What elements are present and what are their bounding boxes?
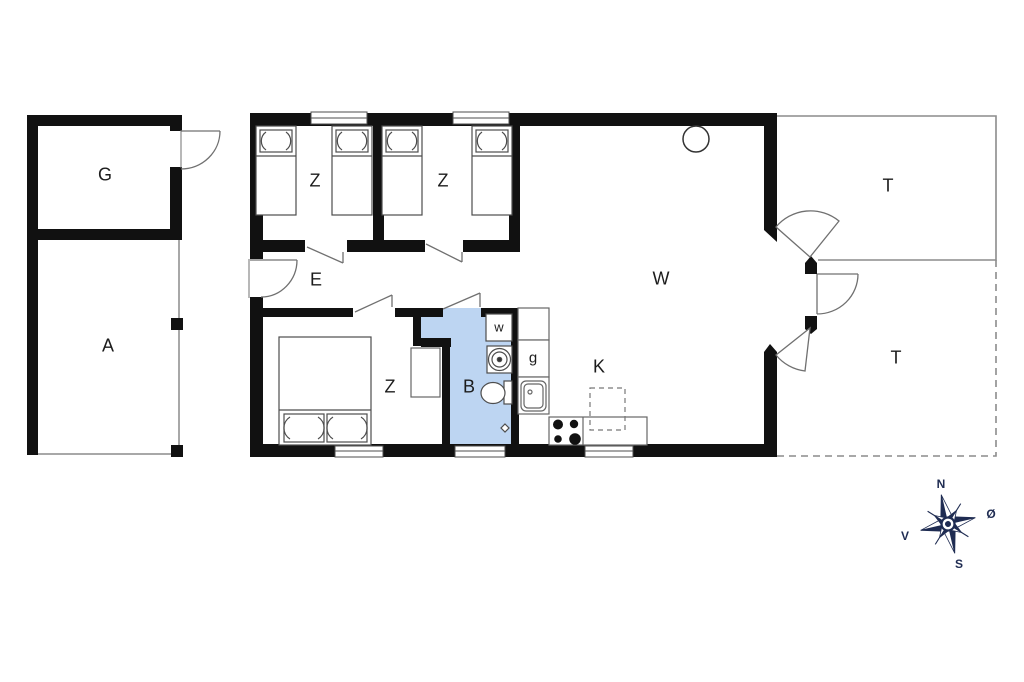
window-icon — [455, 446, 505, 457]
window-icon — [311, 112, 367, 124]
door-hinge-post — [805, 256, 817, 274]
room-label-annex: A — [102, 336, 114, 357]
door-leaf — [355, 295, 392, 312]
window-icon — [453, 112, 509, 124]
room-label-terrace-lower: T — [891, 348, 902, 369]
washing-machine-label: w — [494, 320, 503, 335]
compass-west-label: V — [901, 529, 909, 543]
floor-plan-image: G A Z Z E W Z B K T T w g N Ø S V — [0, 0, 1024, 682]
fireplace-icon — [683, 126, 709, 152]
door-leaf — [307, 247, 343, 263]
terrace-lower-outline — [777, 260, 996, 456]
room-label-garage: G — [98, 165, 112, 186]
annex-post — [171, 318, 183, 330]
wardrobe-icon — [411, 348, 440, 397]
compass-east-label: Ø — [986, 507, 995, 521]
bed-icon — [382, 126, 422, 215]
room-label-bedroom-1: Z — [310, 171, 321, 192]
room-label-hallway: E — [310, 270, 322, 291]
kitchen-sink-icon — [521, 381, 546, 411]
door-swing — [181, 130, 220, 169]
compass-rose — [914, 488, 982, 559]
bed-icon — [472, 126, 512, 215]
room-label-bedroom-2: Z — [438, 171, 449, 192]
double-bed-icon — [279, 337, 371, 445]
door-leaf — [426, 244, 462, 262]
compass-north-label: N — [937, 477, 946, 491]
annex-post — [171, 445, 183, 457]
counter-run — [549, 417, 647, 445]
door-swing — [249, 259, 297, 298]
toilet-icon — [487, 346, 512, 373]
bed-icon — [256, 126, 296, 215]
appliance-label: g — [529, 350, 537, 367]
room-label-living-room: W — [653, 269, 670, 290]
room-label-terrace-upper: T — [883, 176, 894, 197]
single-beds — [256, 126, 512, 215]
bed-icon — [332, 126, 372, 215]
door-leaf — [443, 293, 480, 309]
room-label-bathroom: B — [463, 377, 475, 398]
floor-plan-canvas — [0, 0, 1024, 682]
kitchen-fixtures — [518, 308, 647, 445]
compass-south-label: S — [955, 557, 963, 571]
terrace-door-swings — [776, 211, 858, 371]
counter-cell — [518, 308, 549, 340]
window-icon — [335, 446, 383, 457]
window-icon — [585, 446, 633, 457]
room-label-bedroom-3: Z — [385, 377, 396, 398]
washbasin-icon — [481, 381, 512, 404]
room-label-kitchen: K — [593, 357, 605, 378]
terrace-outlines — [777, 116, 996, 456]
